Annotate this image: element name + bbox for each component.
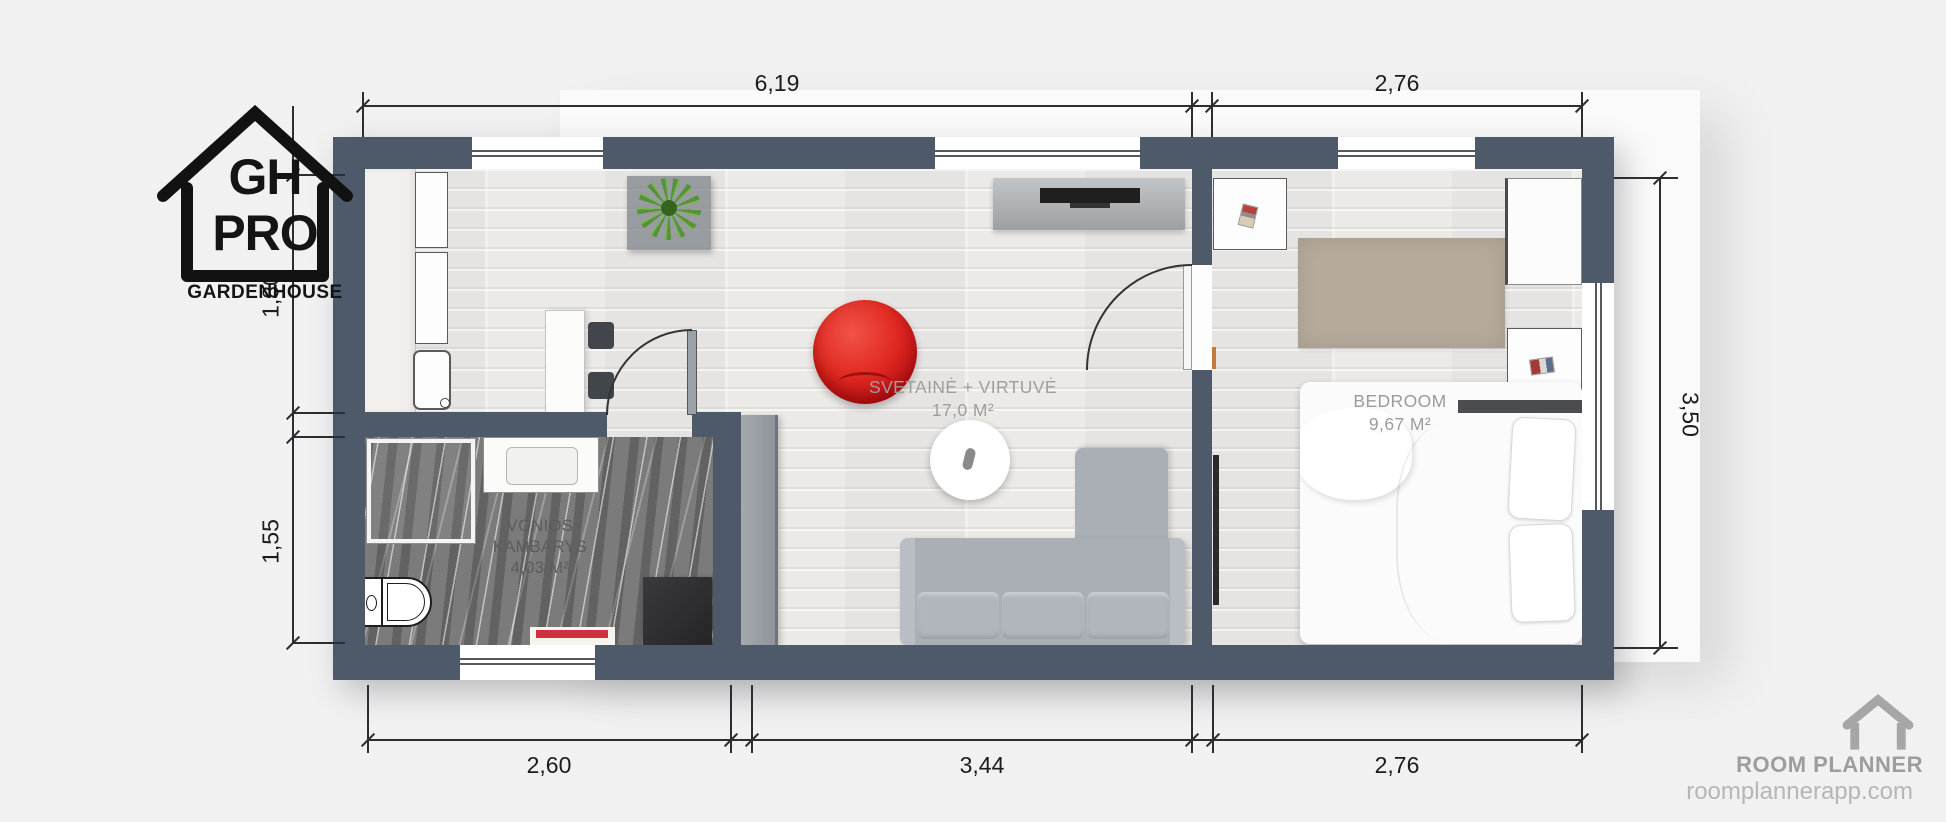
dim-right-depth: 3,50	[1677, 370, 1704, 460]
logo-abbr-bottom: PRO	[170, 204, 360, 262]
bedroom-area: 9,67 M²	[1280, 413, 1520, 436]
dimension-line-right	[1659, 177, 1661, 648]
dim-top-bedroom: 2,76	[1352, 70, 1442, 97]
dim-left-bathroom: 1,55	[258, 497, 285, 587]
dimension-extension	[1614, 177, 1678, 179]
living-kitchen-label: SVETAINĖ + VIRTUVĖ 17,0 M²	[803, 376, 1123, 422]
logo-caption: GARDENHOUSE	[145, 282, 385, 304]
bedroom-name: BEDROOM	[1280, 390, 1520, 413]
dimension-extension	[1212, 685, 1214, 753]
watermark-website: roomplannerapp.com	[1613, 778, 1913, 806]
watermark-brand: ROOM PLANNER	[1623, 752, 1923, 778]
dimension-extension	[1191, 92, 1193, 137]
living-kitchen-area: 17,0 M²	[803, 399, 1123, 422]
dimension-extension	[1191, 685, 1193, 753]
bedroom-label: BEDROOM 9,67 M²	[1280, 390, 1520, 436]
dimension-extension	[730, 685, 732, 753]
room-planner-house-icon	[1838, 692, 1918, 754]
dimension-extension	[293, 642, 345, 644]
dimension-extension	[751, 685, 753, 753]
floor-plan-canvas: SVETAINĖ + VIRTUVĖ 17,0 M² VONIOS KAMBAR…	[0, 0, 1946, 822]
living-kitchen-name: SVETAINĖ + VIRTUVĖ	[803, 376, 1123, 399]
dimension-extension	[1211, 92, 1213, 137]
dimension-line-top	[363, 105, 1582, 107]
dim-bottom-living: 3,44	[937, 752, 1027, 779]
dimension-line-bottom	[368, 739, 1582, 741]
dimension-extension	[1581, 685, 1583, 753]
dimension-extension	[1581, 92, 1583, 137]
bathroom-area: 4,03 M²	[450, 558, 630, 579]
bathroom-name-line1: VONIOS	[450, 516, 630, 537]
bedroom-door-arc	[1087, 265, 1192, 370]
bathroom-name-line2: KAMBARYS	[450, 537, 630, 558]
dim-bottom-bedroom: 2,76	[1352, 752, 1442, 779]
dimension-extension	[367, 685, 369, 753]
dim-top-living: 6,19	[732, 70, 822, 97]
dimension-extension	[1614, 647, 1678, 649]
logo-abbr-top: GH	[170, 148, 360, 206]
bathroom-door-arc	[607, 330, 692, 415]
bathroom-label: VONIOS KAMBARYS 4,03 M²	[450, 516, 630, 579]
dimension-extension	[293, 412, 345, 414]
dimension-extension	[293, 436, 345, 438]
dim-bottom-bathroom: 2,60	[504, 752, 594, 779]
